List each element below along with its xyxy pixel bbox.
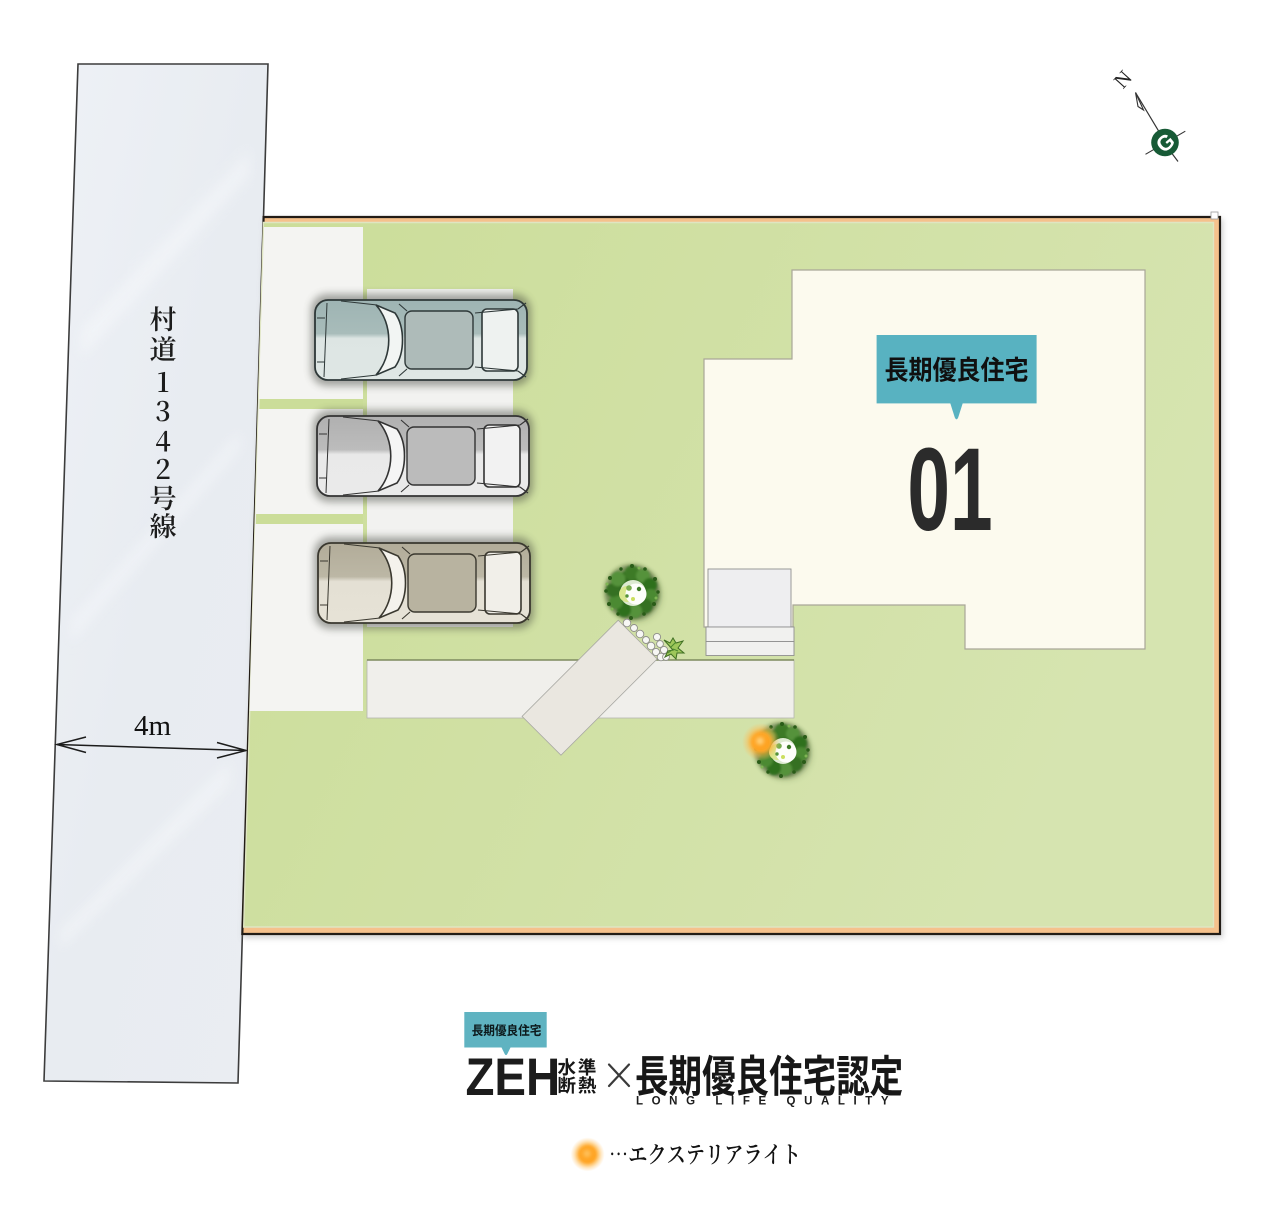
svg-text:LONG LIFE QUALITY: LONG LIFE QUALITY [636,1096,897,1108]
svg-text:ZEH: ZEH [466,1048,561,1107]
svg-text:4m: 4m [134,710,172,742]
svg-text:01: 01 [907,424,992,556]
